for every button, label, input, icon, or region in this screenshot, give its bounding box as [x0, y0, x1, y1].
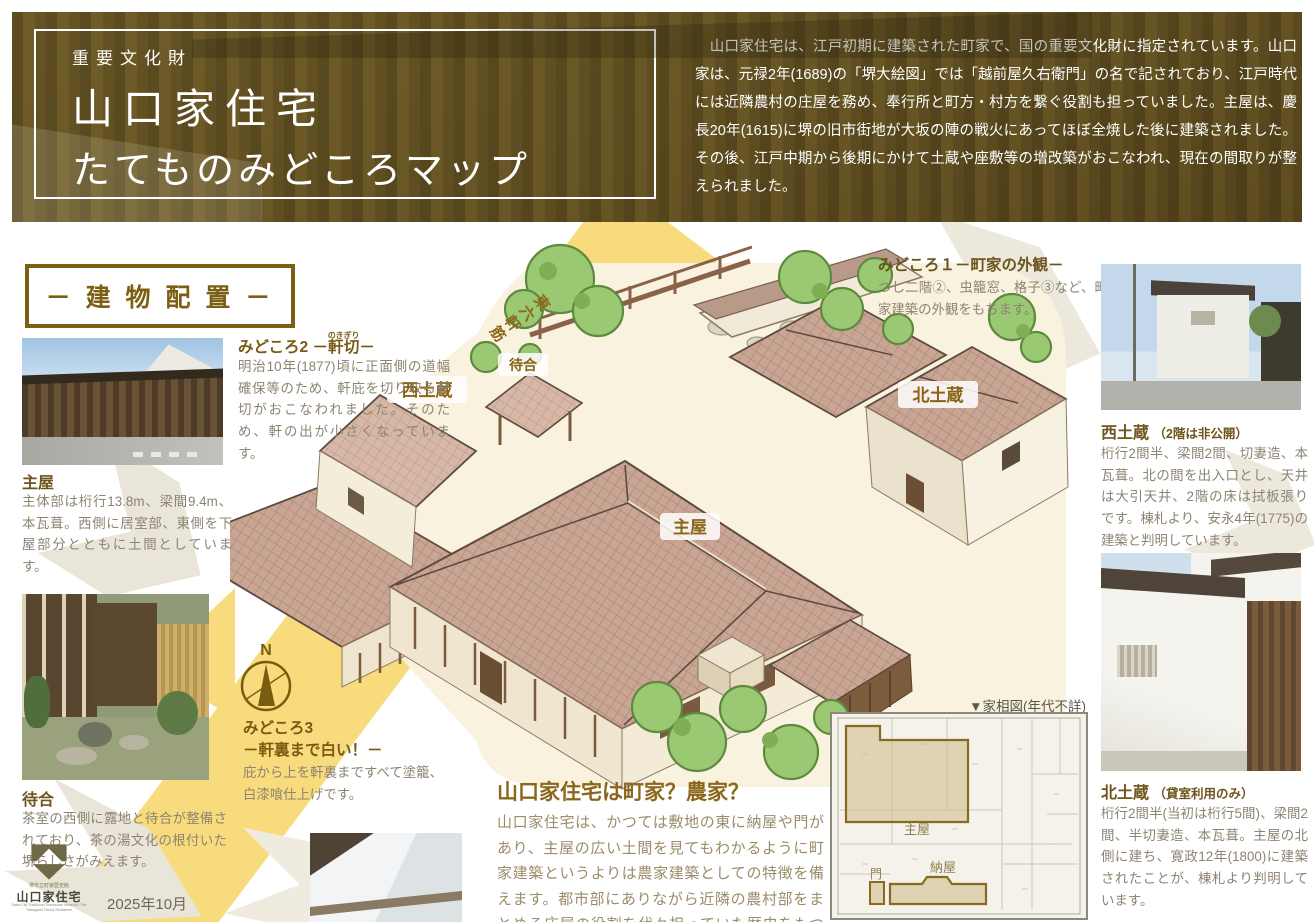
map-label-omoya: 主屋 [673, 517, 707, 537]
photo-utility-pole [1133, 264, 1136, 381]
highlight2-title: みどころ2 －軒切のきぎり－ [238, 331, 375, 357]
photo-lattice-window [1117, 645, 1157, 678]
map-label-kita-dozo: 北土蔵 [913, 385, 964, 405]
intro-paragraph: 山口家住宅は、江戸初期に建築された町家で、国の重要文化財に指定されています。山口… [695, 34, 1297, 202]
photo-water-basin [78, 722, 112, 746]
omoya-caption: 主体部は桁行13.8m、梁間9.4m、本瓦葺。西側に居室部、東側を下屋部分ととも… [22, 491, 232, 578]
plan-label-naya: 納屋 [930, 860, 956, 875]
plan-label-omoya: 主屋 [904, 822, 930, 837]
photo-road-marking [133, 452, 197, 457]
museum-logo [30, 843, 68, 881]
photo-machiai [22, 594, 209, 780]
plan-naya-highlight [890, 877, 986, 904]
photo-kita-dozo [1101, 553, 1301, 771]
floor-plan: 主屋 納屋 門 [830, 712, 1088, 920]
nishi-dozo-title: 西土蔵 （2階は非公開） [1101, 419, 1248, 443]
photo-plant [24, 676, 50, 728]
museum-name-english: Sakai City Traditional Townhouse Museum … [8, 903, 90, 912]
photo-window [1191, 311, 1215, 326]
highlight1-title: みどころ１－町家の外観－ [878, 253, 1064, 275]
publication-date: 2025年10月 [107, 893, 187, 914]
photo-ground [1101, 751, 1247, 771]
photo-beam [310, 891, 462, 916]
cultural-property-tag: 重要文化財 [72, 44, 654, 69]
omoya-title: 主屋 [22, 469, 54, 493]
photo-eaves-plaster [310, 833, 462, 922]
machiai-title: 待合 [22, 786, 54, 810]
photo-roof-tiles [1211, 553, 1301, 577]
highlight2-body: 明治10年(1877)頃に正面側の道幅確保等のため、軒庇を切り取る軒切がおこなわ… [238, 356, 450, 465]
compass-n-label: N [260, 642, 272, 659]
page-subtitle: たてものみどころマップ [72, 139, 654, 194]
highlight3-body: 庇から上を軒裏まですべて塗籠、白漆喰仕上げです。 [243, 762, 443, 805]
plan-label-mon: 門 [870, 867, 882, 881]
photo-road [1101, 381, 1301, 410]
highlight3-title-line1: みどころ3 [243, 716, 313, 738]
photo-wood-facade [22, 376, 223, 440]
highlight3-title-line2: －軒裏まで白い！－ [243, 738, 383, 760]
photo-omoya [22, 338, 223, 465]
poster-page: 重要文化財 山口家住宅 たてものみどころマップ 山口家住宅は、江戸初期に建築され… [0, 0, 1314, 922]
question-body: 山口家住宅は、かつては敷地の東に納屋や門があり、主屋の広い土間を見てもわかるよう… [497, 810, 824, 922]
photo-dark-wall [93, 603, 157, 705]
question-title: 山口家住宅は町家？農家？ [497, 776, 749, 806]
compass: N [230, 638, 302, 722]
photo-wood-gate [1247, 601, 1301, 771]
title-box: 重要文化財 山口家住宅 たてものみどころマップ [34, 29, 656, 199]
compass-needle [258, 664, 275, 706]
photo-stone [56, 747, 97, 766]
kita-dozo-title: 北土蔵 （貸室利用のみ） [1101, 779, 1253, 803]
photo-nishi-dozo [1101, 264, 1301, 410]
page-title: 山口家住宅 [72, 75, 654, 135]
highlight1-body: つし二階②、虫籠窓、格子③など、町家建築の外観をもちます。 [878, 277, 1108, 320]
photo-greenery [1249, 305, 1281, 337]
photo-plant [157, 691, 198, 736]
map-label-machiai: 待合 [509, 357, 538, 373]
kita-dozo-caption: 桁行2間半(当初は桁行5間)、梁間2間、半切妻造、本瓦葺。主屋の北側に建ち、寛政… [1101, 803, 1308, 912]
photo-dark-corner [310, 833, 374, 876]
plan-omoya-highlight [846, 726, 968, 822]
plan-mon-highlight [870, 882, 884, 904]
photo-kura-wall [1157, 295, 1249, 378]
nishi-dozo-caption: 桁行2間半、梁間2間、切妻造、本瓦葺。北の間を出入口とし、天井は大引天井、2階の… [1101, 443, 1308, 552]
photo-road [22, 437, 223, 465]
header-banner: 重要文化財 山口家住宅 たてものみどころマップ 山口家住宅は、江戸初期に建築され… [12, 12, 1302, 222]
section-heading-building-layout: － 建 物 配 置 － [25, 264, 295, 328]
